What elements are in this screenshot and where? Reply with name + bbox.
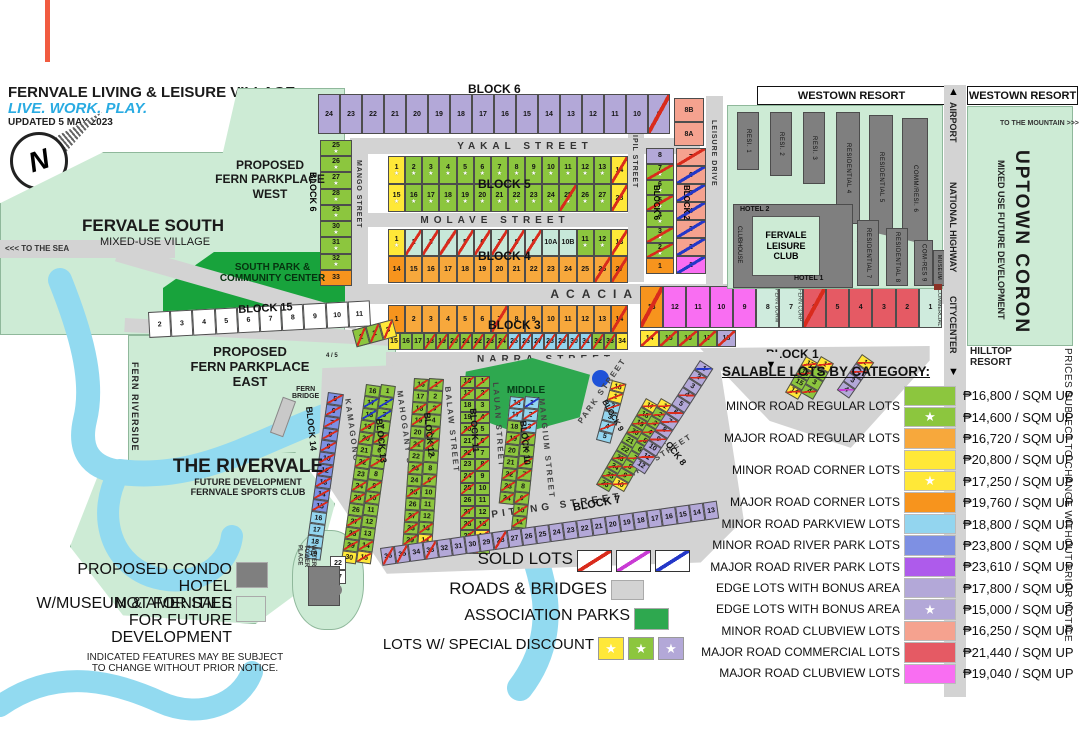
legend-category-label: MAJOR ROAD COMMERCIAL LOTS <box>698 642 904 663</box>
lot: 14 <box>538 94 560 134</box>
lot: 23 <box>407 462 423 475</box>
lot: 8A <box>674 122 704 146</box>
legend-category-label: MAJOR ROAD CLUBVIEW LOTS <box>698 663 904 684</box>
legend-category-label: MINOR ROAD PARKVIEW LOTS <box>698 513 904 534</box>
building-resi1: RESI. 1 <box>737 112 759 170</box>
fervale-south-sub: MIXED-USE VILLAGE <box>100 236 210 248</box>
lot: 16 <box>678 330 697 347</box>
building-label: COMM/RESI. 6 <box>912 165 918 212</box>
block11-colB: 123456789101112131415 <box>475 376 490 554</box>
leisure-drive: LEISURE DRIVE <box>710 120 717 187</box>
lot: 8 <box>422 462 438 475</box>
lot: 20 <box>448 333 460 350</box>
lot: 13 <box>475 518 490 530</box>
lot: 13★ <box>594 156 611 184</box>
lot: 2 <box>427 390 443 403</box>
legend-price: ₱23,610 / SQM UP <box>956 556 1080 577</box>
lot: 17 <box>412 333 424 350</box>
lot: 31 <box>580 333 592 350</box>
discount-yellow-swatch: ★ <box>598 637 624 660</box>
lot: 30★ <box>320 221 352 237</box>
lot: 17 <box>412 390 428 403</box>
block1-row: 1312111098FERN DORM7FERN CORP654321COMME… <box>640 286 942 328</box>
fern-parkplace-west-label: PROPOSED FERN PARKPLACE WEST <box>195 158 345 201</box>
lot: 16 <box>422 256 439 283</box>
legend-category-label: EDGE LOTS WITH BONUS AREA <box>698 599 904 620</box>
lot: 1★ <box>388 156 405 184</box>
lot: 12 <box>582 94 604 134</box>
lot: 8B <box>674 98 704 122</box>
legend-price: ₱16,250 / SQM UP <box>956 620 1080 641</box>
lot: 26★ <box>577 184 594 212</box>
building-label: RESIDENTIAL 8 <box>894 232 900 283</box>
legend-category-label: MAJOR ROAD RIVER PARK LOTS <box>698 556 904 577</box>
lot: 27★ <box>594 184 611 212</box>
lot: 33 <box>604 333 616 350</box>
lot: 13 <box>640 286 663 328</box>
lot: 25 <box>508 333 520 350</box>
lot: 16 <box>460 376 475 388</box>
lot: 27 <box>404 510 420 523</box>
lot: 5 <box>676 184 706 202</box>
lot: 4 <box>192 309 216 336</box>
lot: 34 <box>616 333 628 350</box>
block2-col: 7654321 <box>676 148 706 274</box>
legend-swatch <box>904 492 956 512</box>
lot: 17 <box>460 388 475 400</box>
lot: 25★ <box>320 140 352 156</box>
lot: 2 <box>475 388 490 400</box>
lot: 3 <box>422 229 439 256</box>
lot: 5 <box>215 307 239 334</box>
lot: 15 <box>405 256 422 283</box>
lot: 14 <box>388 256 405 283</box>
sold-lots-row: SOLD LOTS <box>330 550 690 572</box>
lot: 2 <box>676 238 706 256</box>
lot: 24 <box>499 491 515 505</box>
lot: 15 <box>516 94 538 134</box>
lot: 5★ <box>457 156 474 184</box>
lot: 5 <box>457 229 474 256</box>
legend-swatch <box>904 386 956 406</box>
lot: 28 <box>460 518 475 530</box>
lot: 9 <box>303 303 327 330</box>
lot: 12 <box>475 506 490 518</box>
lot: 23 <box>340 94 362 134</box>
lot: 2 <box>148 311 172 338</box>
lot: 31★ <box>320 237 352 253</box>
building-label: COM-RES 9 <box>921 244 927 282</box>
lot: 2 <box>896 286 919 328</box>
lot: 21 <box>409 438 425 451</box>
association-parks-label: ASSOCIATION PARKS <box>330 608 630 625</box>
lot: 7 <box>676 148 706 166</box>
building-comres9: COM-RES 9 <box>914 240 933 286</box>
lot: 25 <box>406 486 422 499</box>
lot: 22 <box>362 94 384 134</box>
association-parks-row: ASSOCIATION PARKS <box>330 608 669 630</box>
lot: 10B <box>559 229 576 256</box>
lot: 18★ <box>439 184 456 212</box>
lot: 24 <box>406 474 422 487</box>
mango-street: MANGO STREET <box>355 160 362 228</box>
legend-swatch <box>904 450 956 470</box>
building-label: RESIDENTIAL 5 <box>878 152 884 203</box>
lot: 6 <box>803 286 826 328</box>
lot: 29 <box>556 333 568 350</box>
lot: 28 <box>611 184 628 212</box>
legend-title: SALABLE LOTS BY CATEGORY: <box>722 364 930 379</box>
lot: 10 <box>626 94 648 134</box>
hotel1-label: HOTEL 1 <box>794 275 823 282</box>
legend-swatch <box>904 428 956 448</box>
lot: 1 <box>428 378 444 391</box>
building-res8: RESIDENTIAL 8 <box>886 228 908 286</box>
lot: 18 <box>450 94 472 134</box>
fervale-south-label: FERVALE SOUTH <box>82 216 224 236</box>
uptown-coron-label: UPTOWN CORON <box>1010 150 1032 334</box>
lot: 20 <box>406 94 428 134</box>
lot: 8 <box>475 459 490 471</box>
lot: 11 <box>686 286 709 328</box>
legend-swatch <box>904 664 956 684</box>
block5-label: BLOCK 5 <box>478 177 531 191</box>
to-mountain-label: TO THE MOUNTAIN >>> <box>1000 120 1079 127</box>
lot: 23 <box>542 256 559 283</box>
block6-row: 2423222120191817161514131211109 <box>318 94 670 134</box>
block3-row2: 1516171819202122232425262728293031323334 <box>388 333 628 350</box>
lot: 24 <box>460 471 475 483</box>
legend-category-label: EDGE LOTS WITH BONUS AREA <box>698 578 904 599</box>
lot: 17 <box>698 330 717 347</box>
lot: 19 <box>428 94 450 134</box>
lot: 25 <box>577 256 594 283</box>
building-label: RESI. 2 <box>778 132 784 156</box>
lot: 19★ <box>457 184 474 212</box>
legend-price: ₱16,720 / SQM UP <box>956 428 1080 449</box>
westown-resort-box: WESTOWN RESORT <box>967 86 1078 105</box>
not-for-sale-row: NOT FOR SALE FOR FUTURE DEVELOPMENT <box>5 596 266 646</box>
legend-swatch <box>904 578 956 598</box>
hotel2-label: HOTEL 2 <box>740 206 769 213</box>
lot: 14 <box>611 156 628 184</box>
lot: 23 <box>484 333 496 350</box>
compass-north-letter: N <box>24 143 53 180</box>
legend-price: ₱17,250 / SQM UP <box>956 471 1080 492</box>
lot: 10 <box>325 302 349 329</box>
hilltop-resort-label: HILLTOP RESORT <box>970 346 1032 368</box>
airport-arrow-icon: ▲ <box>948 86 959 98</box>
legend-category-label: MINOR ROAD CORNER LOTS <box>698 449 904 492</box>
lot: 6 <box>676 166 706 184</box>
building-label: RESI. 3 <box>811 136 817 160</box>
lot: 15 <box>659 330 678 347</box>
lot: 13 <box>560 94 582 134</box>
fervale-leisure-club: FERVALE LEISURE CLUB <box>752 216 820 276</box>
lot: 24 <box>559 256 576 283</box>
lot: 9 <box>421 474 437 487</box>
legend-price: ₱21,440 / SQM UP <box>956 642 1080 663</box>
lot: 14 <box>611 305 628 333</box>
citycenter-arrow-icon: ▼ <box>948 366 959 378</box>
lot: 4 <box>676 202 706 220</box>
lot: 17★ <box>422 184 439 212</box>
lot: 28 <box>544 333 556 350</box>
lot: 22 <box>472 333 484 350</box>
lot: 2★ <box>405 156 422 184</box>
legend-swatch <box>904 621 956 641</box>
lot: 10A <box>542 229 559 256</box>
block11-colA: 161718192021222324252627282930 <box>460 376 475 554</box>
lot: 10★ <box>542 156 559 184</box>
legend-swatch <box>904 535 956 555</box>
lot: 12 <box>663 286 686 328</box>
lot: 19 <box>436 333 448 350</box>
lot: 28 <box>403 522 419 535</box>
lot: 9 <box>475 471 490 483</box>
lot: 18 <box>457 256 474 283</box>
salable-legend-grid: MINOR ROAD REGULAR LOTS₱16,800 / SQM UP★… <box>698 385 1080 684</box>
westown-resort-banner: WESTOWN RESORT <box>757 86 946 105</box>
lot: 26 <box>520 333 532 350</box>
site-map: FERNVALE LIVING & LEISURE VILLAGE LIVE. … <box>0 0 1080 754</box>
legend-category-label: MAJOR ROAD REGULAR LOTS <box>698 428 904 449</box>
lot: 24 <box>496 333 508 350</box>
lot: 13 <box>418 522 434 535</box>
lot: 1★ <box>388 229 405 256</box>
lot: 11 <box>475 495 490 507</box>
lot: 4★ <box>439 156 456 184</box>
building-label: RESIDENTIAL 7 <box>865 228 871 279</box>
water-tower-label: WATER TOWER PLACE <box>296 545 316 567</box>
lot: 16 <box>400 333 412 350</box>
legend-price: ₱14,600 / SQM UP <box>956 406 1080 427</box>
lot: 3 <box>170 310 194 337</box>
lot: 11★ <box>559 156 576 184</box>
block3-label: BLOCK 3 <box>488 318 541 332</box>
lot: 4 <box>439 229 456 256</box>
lot: 10 <box>421 486 437 499</box>
special-discount-row: LOTS W/ SPECIAL DISCOUNT ★ ★ ★ <box>330 637 684 660</box>
lot: 13 <box>594 305 611 333</box>
sold-blue-swatch <box>655 550 690 572</box>
block2-label: BLOCK 2 <box>682 185 691 220</box>
legend-category-label: MINOR ROAD REGULAR LOTS <box>698 385 904 428</box>
accent-line <box>45 0 50 62</box>
lot: 1COMMERCIAL <box>919 286 942 328</box>
legend-swatch <box>904 514 956 534</box>
lot: 11★ <box>577 229 594 256</box>
block6-green-label: BLOCK 6 <box>652 185 661 220</box>
lot: 13 <box>611 229 628 256</box>
lot: 11 <box>604 94 626 134</box>
lot: 18 <box>424 333 436 350</box>
sold-magenta-swatch <box>616 550 651 572</box>
lot: 7★ <box>646 164 674 180</box>
lot: 3 <box>872 286 895 328</box>
lot: 17 <box>439 256 456 283</box>
legend-category-label: MAJOR ROAD CORNER LOTS <box>698 492 904 513</box>
building-label: MUSEUM <box>936 255 942 280</box>
lot: 5 <box>457 305 474 333</box>
lot: 1 <box>676 256 706 274</box>
rivervale-label: THE RIVERVALE <box>148 456 348 478</box>
sold-red-swatch <box>577 550 612 572</box>
lot: 3★ <box>646 227 674 243</box>
lot: 8FERN DORM <box>756 286 779 328</box>
not-for-sale-label: NOT FOR SALE FOR FUTURE DEVELOPMENT <box>5 596 232 646</box>
lot: 3 <box>422 305 439 333</box>
lot: 5 <box>826 286 849 328</box>
legend-swatch: ★ <box>904 599 956 619</box>
lot: 12★ <box>594 229 611 256</box>
clubhouse-label: CLUBHOUSE <box>736 226 742 263</box>
not-for-sale-swatch <box>236 596 266 622</box>
building-resi3: RESI. 3 <box>803 112 825 184</box>
discount-purple-swatch: ★ <box>658 637 684 660</box>
lot: 4 <box>439 305 456 333</box>
disclaimer: INDICATED FEATURES MAY BE SUBJECT TO CHA… <box>55 652 315 674</box>
legend-price: ₱19,040 / SQM UP <box>956 663 1080 684</box>
national-highway-label: NATIONAL HIGHWAY <box>948 182 958 272</box>
lot: 3 <box>676 220 706 238</box>
lot: 10 <box>475 483 490 495</box>
lot: 21 <box>460 333 472 350</box>
lot: 14 <box>640 330 659 347</box>
block1-row2: 1415161718 <box>640 330 736 347</box>
legend-swatch: ★ <box>904 471 956 491</box>
building-resi2: RESI. 2 <box>770 112 792 176</box>
legend-swatch <box>904 557 956 577</box>
legend-swatch <box>904 642 956 662</box>
lot: 30 <box>568 333 580 350</box>
lot: 26 <box>460 495 475 507</box>
lot: 2 <box>405 305 422 333</box>
lot: 10 <box>710 286 733 328</box>
building-label: RESI. 1 <box>745 129 751 153</box>
updated-date: UPDATED 5 MAY 2023 <box>8 117 113 128</box>
lot: 2 <box>405 229 422 256</box>
legend-category-label: MINOR ROAD RIVER PARK LOTS <box>698 535 904 556</box>
airport-label: AIRPORT <box>948 102 958 143</box>
lot: 29★ <box>320 205 352 221</box>
rivervale-sub2: FERNVALE SPORTS CLUB <box>148 487 348 497</box>
roads-bridges-row: ROADS & BRIDGES <box>330 580 644 600</box>
tagline: LIVE. WORK. PLAY. <box>8 100 147 117</box>
legend-price: ₱18,800 / SQM UP <box>956 513 1080 534</box>
to-the-sea-label: <<< TO THE SEA <box>5 244 69 253</box>
legend-price: ₱20,800 / SQM UP <box>956 449 1080 470</box>
legend-price: ₱17,800 / SQM UP <box>956 578 1080 599</box>
lot: 2★ <box>646 243 674 259</box>
lot: 12 <box>577 305 594 333</box>
legend-price: ₱16,800 / SQM UP <box>956 385 1080 406</box>
lot: 7FERN CORP <box>779 286 802 328</box>
lot: 16 <box>494 94 516 134</box>
legend-swatch: ★ <box>904 407 956 427</box>
lot: 24 <box>318 94 340 134</box>
lot: 24★ <box>542 184 559 212</box>
legend-category-label: MINOR ROAD CLUBVIEW LOTS <box>698 620 904 641</box>
citycenter-label: CITYCENTER <box>948 296 958 354</box>
lot: 22 <box>408 450 424 463</box>
lot: 27 <box>611 256 628 283</box>
lot: 11 <box>420 498 436 511</box>
fern-riverside-label: FERN RIVERSIDE <box>130 362 140 452</box>
marker-square <box>934 284 942 290</box>
special-discount-label: LOTS W/ SPECIAL DISCOUNT <box>330 637 594 653</box>
lot: 27 <box>460 506 475 518</box>
lot: 16★ <box>405 184 422 212</box>
lot: 15★ <box>388 184 405 212</box>
roads-bridges-label: ROADS & BRIDGES <box>330 580 607 598</box>
lot: 26 <box>594 256 611 283</box>
fern-parkplace-east-label: PROPOSED FERN PARKPLACE EAST <box>170 345 330 390</box>
legend-price: ₱19,760 / SQM UP <box>956 492 1080 513</box>
building-res7: RESIDENTIAL 7 <box>857 220 879 286</box>
lot: 9 <box>733 286 756 328</box>
lot: 25 <box>460 483 475 495</box>
lot: 11 <box>559 305 576 333</box>
lot: 18 <box>717 330 736 347</box>
rivervale-sub1: FUTURE DEVELOPMENT <box>148 477 348 487</box>
lot: 32 <box>592 333 604 350</box>
lot: 10 <box>542 305 559 333</box>
uptown-sub-label: MIXED USE FUTURE DEVELOPMENT <box>996 160 1006 320</box>
lot: 9 <box>648 94 670 134</box>
building-label: RESIDENTIAL 4 <box>845 143 851 194</box>
molave-street: MOLAVE STREET <box>350 213 640 227</box>
lot: 25★ <box>559 184 576 212</box>
roads-swatch <box>611 580 644 600</box>
block8ab-col: 8B8A <box>674 98 704 146</box>
lot: 11 <box>348 300 372 327</box>
lot: 12 <box>419 510 435 523</box>
lot: 16 <box>413 378 429 391</box>
lot: 4 <box>849 286 872 328</box>
ipil-street-top: IPIL STREET <box>631 135 638 188</box>
block4-label: BLOCK 4 <box>478 249 531 263</box>
lot: 17 <box>472 94 494 134</box>
lot: 12★ <box>577 156 594 184</box>
lot: 3★ <box>422 156 439 184</box>
lot: 8 <box>646 148 674 164</box>
lot: 1 <box>646 258 674 274</box>
south-park-label: SOUTH PARK & COMMUNITY CENTER <box>200 262 345 284</box>
fervale-leisure-club-label: FERVALE LEISURE CLUB <box>765 230 806 261</box>
condo-hotel-swatch <box>236 562 268 588</box>
lot: 27 <box>532 333 544 350</box>
lot: 1 <box>475 376 490 388</box>
discount-green-swatch: ★ <box>628 637 654 660</box>
lot: 26 <box>405 498 421 511</box>
lot: 23 <box>460 459 475 471</box>
sold-lots-label: SOLD LOTS <box>330 550 573 568</box>
legend-price: ₱15,000 / SQM UP <box>956 599 1080 620</box>
legend-price: ₱23,800 / SQM UP <box>956 535 1080 556</box>
parks-swatch <box>634 608 669 630</box>
lot: 21 <box>384 94 406 134</box>
